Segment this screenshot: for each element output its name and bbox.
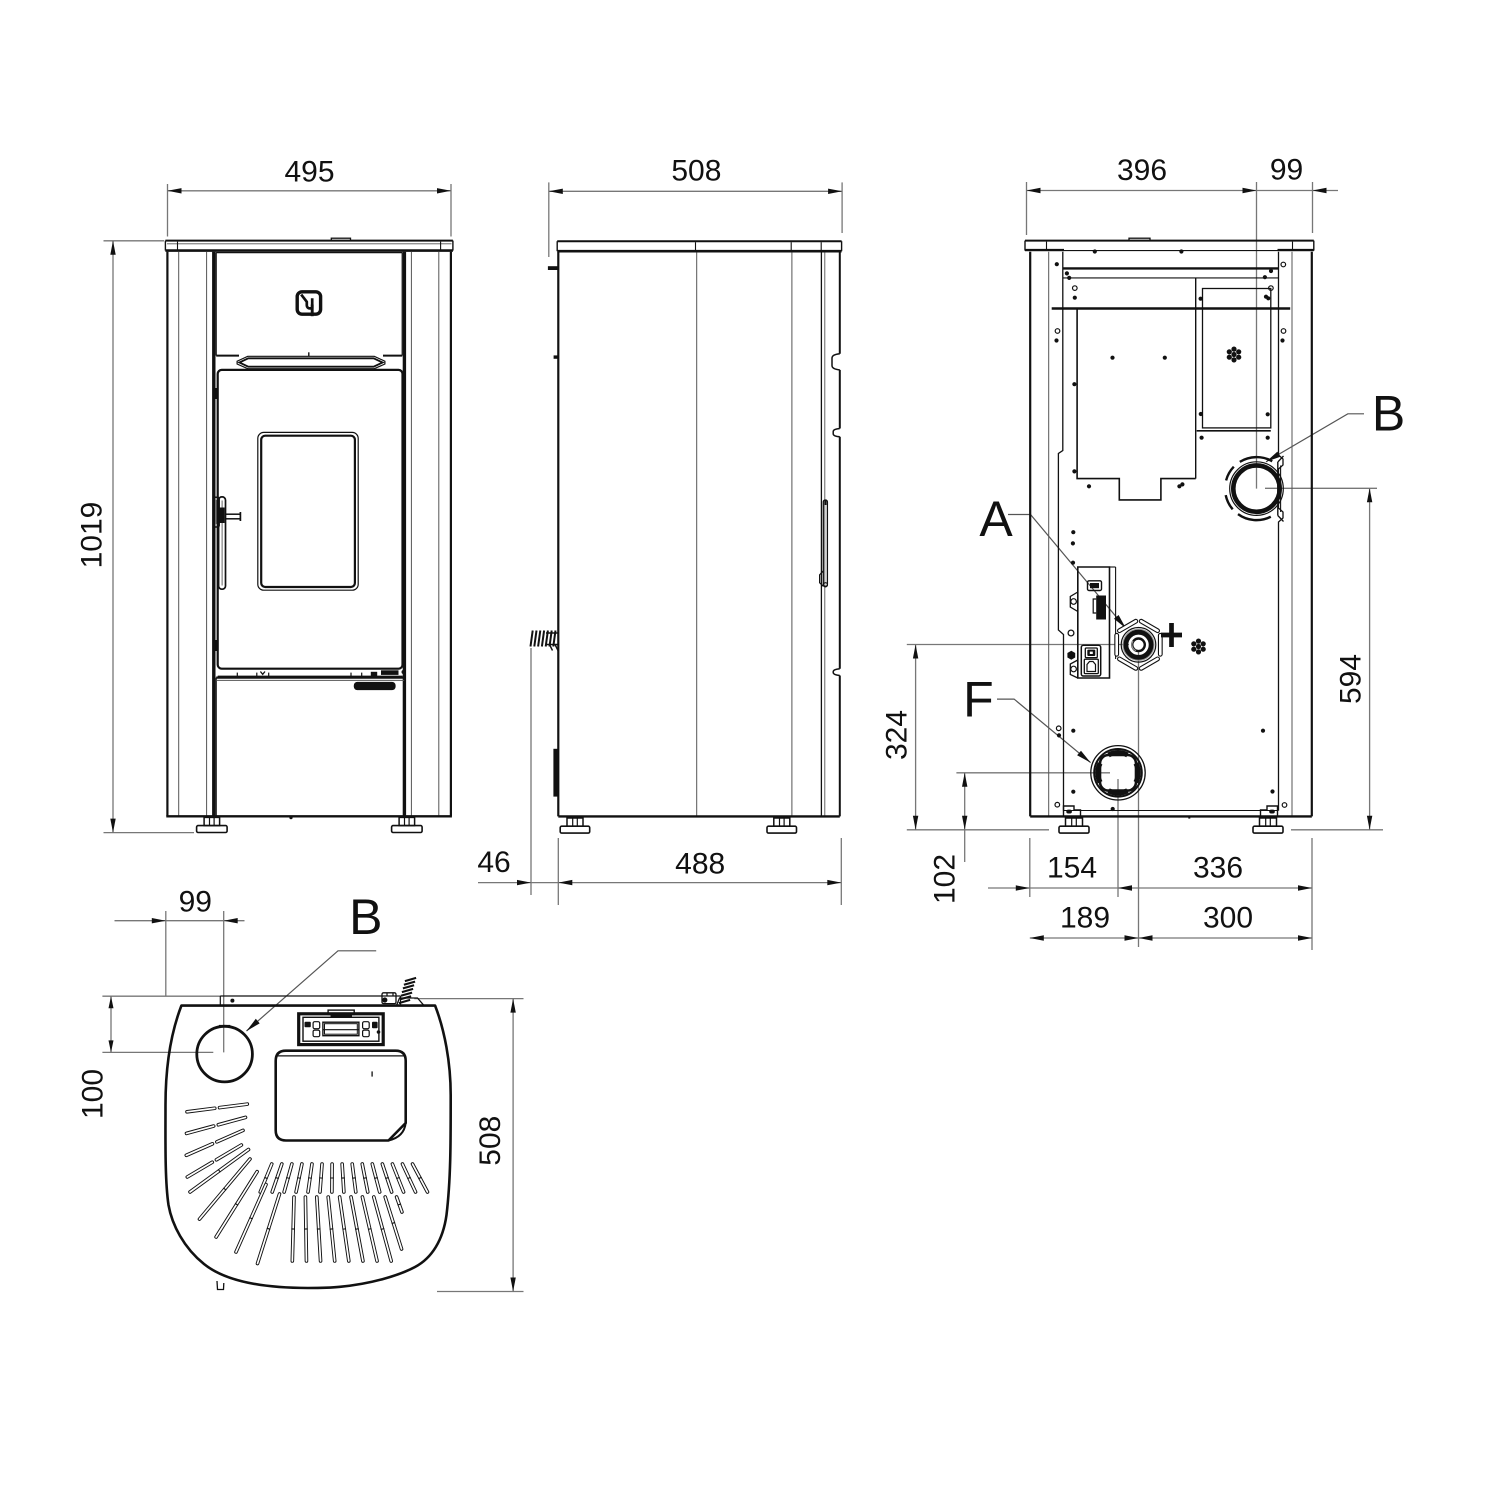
svg-text:396: 396 [1117, 154, 1167, 187]
svg-text:189: 189 [1060, 902, 1110, 935]
svg-text:46: 46 [477, 846, 510, 879]
svg-text:508: 508 [474, 1116, 507, 1166]
svg-text:102: 102 [929, 854, 962, 904]
svg-text:324: 324 [881, 710, 914, 760]
svg-text:336: 336 [1193, 852, 1243, 885]
svg-text:B: B [1372, 386, 1405, 442]
svg-text:1019: 1019 [76, 502, 109, 569]
svg-text:594: 594 [1335, 654, 1368, 704]
svg-text:100: 100 [77, 1069, 110, 1119]
svg-text:300: 300 [1203, 902, 1253, 935]
svg-text:154: 154 [1047, 852, 1097, 885]
svg-text:508: 508 [671, 155, 721, 188]
svg-text:F: F [963, 672, 994, 728]
svg-text:495: 495 [284, 156, 334, 189]
svg-text:488: 488 [675, 848, 725, 881]
svg-text:A: A [979, 491, 1013, 547]
svg-text:B: B [349, 889, 382, 945]
svg-text:99: 99 [1270, 154, 1303, 187]
svg-text:99: 99 [179, 886, 212, 919]
